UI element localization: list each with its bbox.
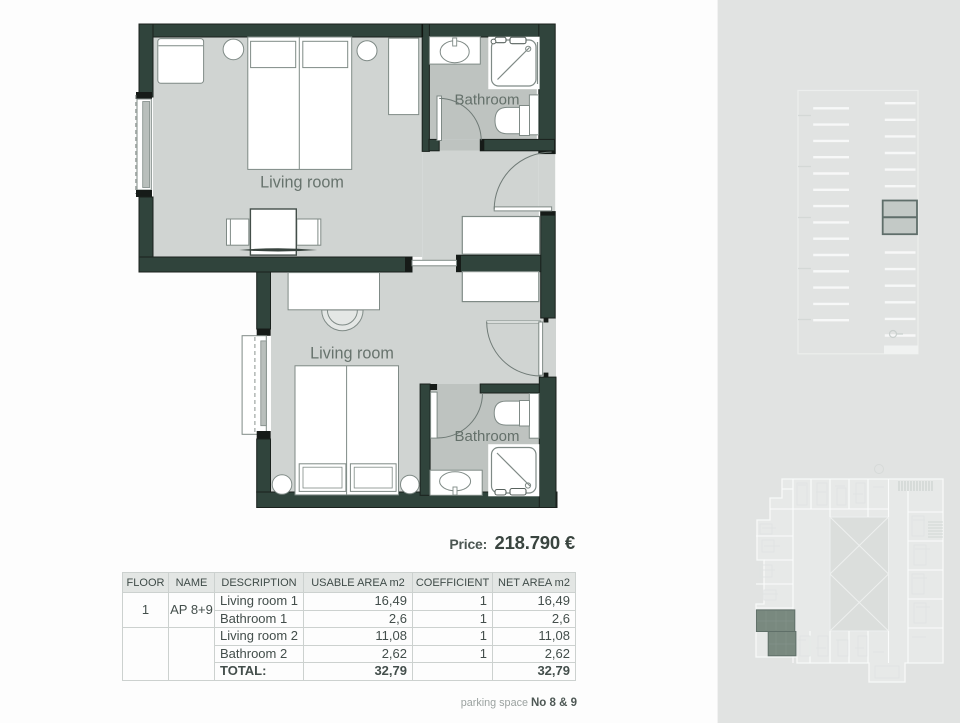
svg-text:Bathroom: Bathroom: [454, 428, 519, 445]
svg-text:Living room: Living room: [260, 174, 344, 192]
svg-text:Living room: Living room: [310, 345, 394, 363]
